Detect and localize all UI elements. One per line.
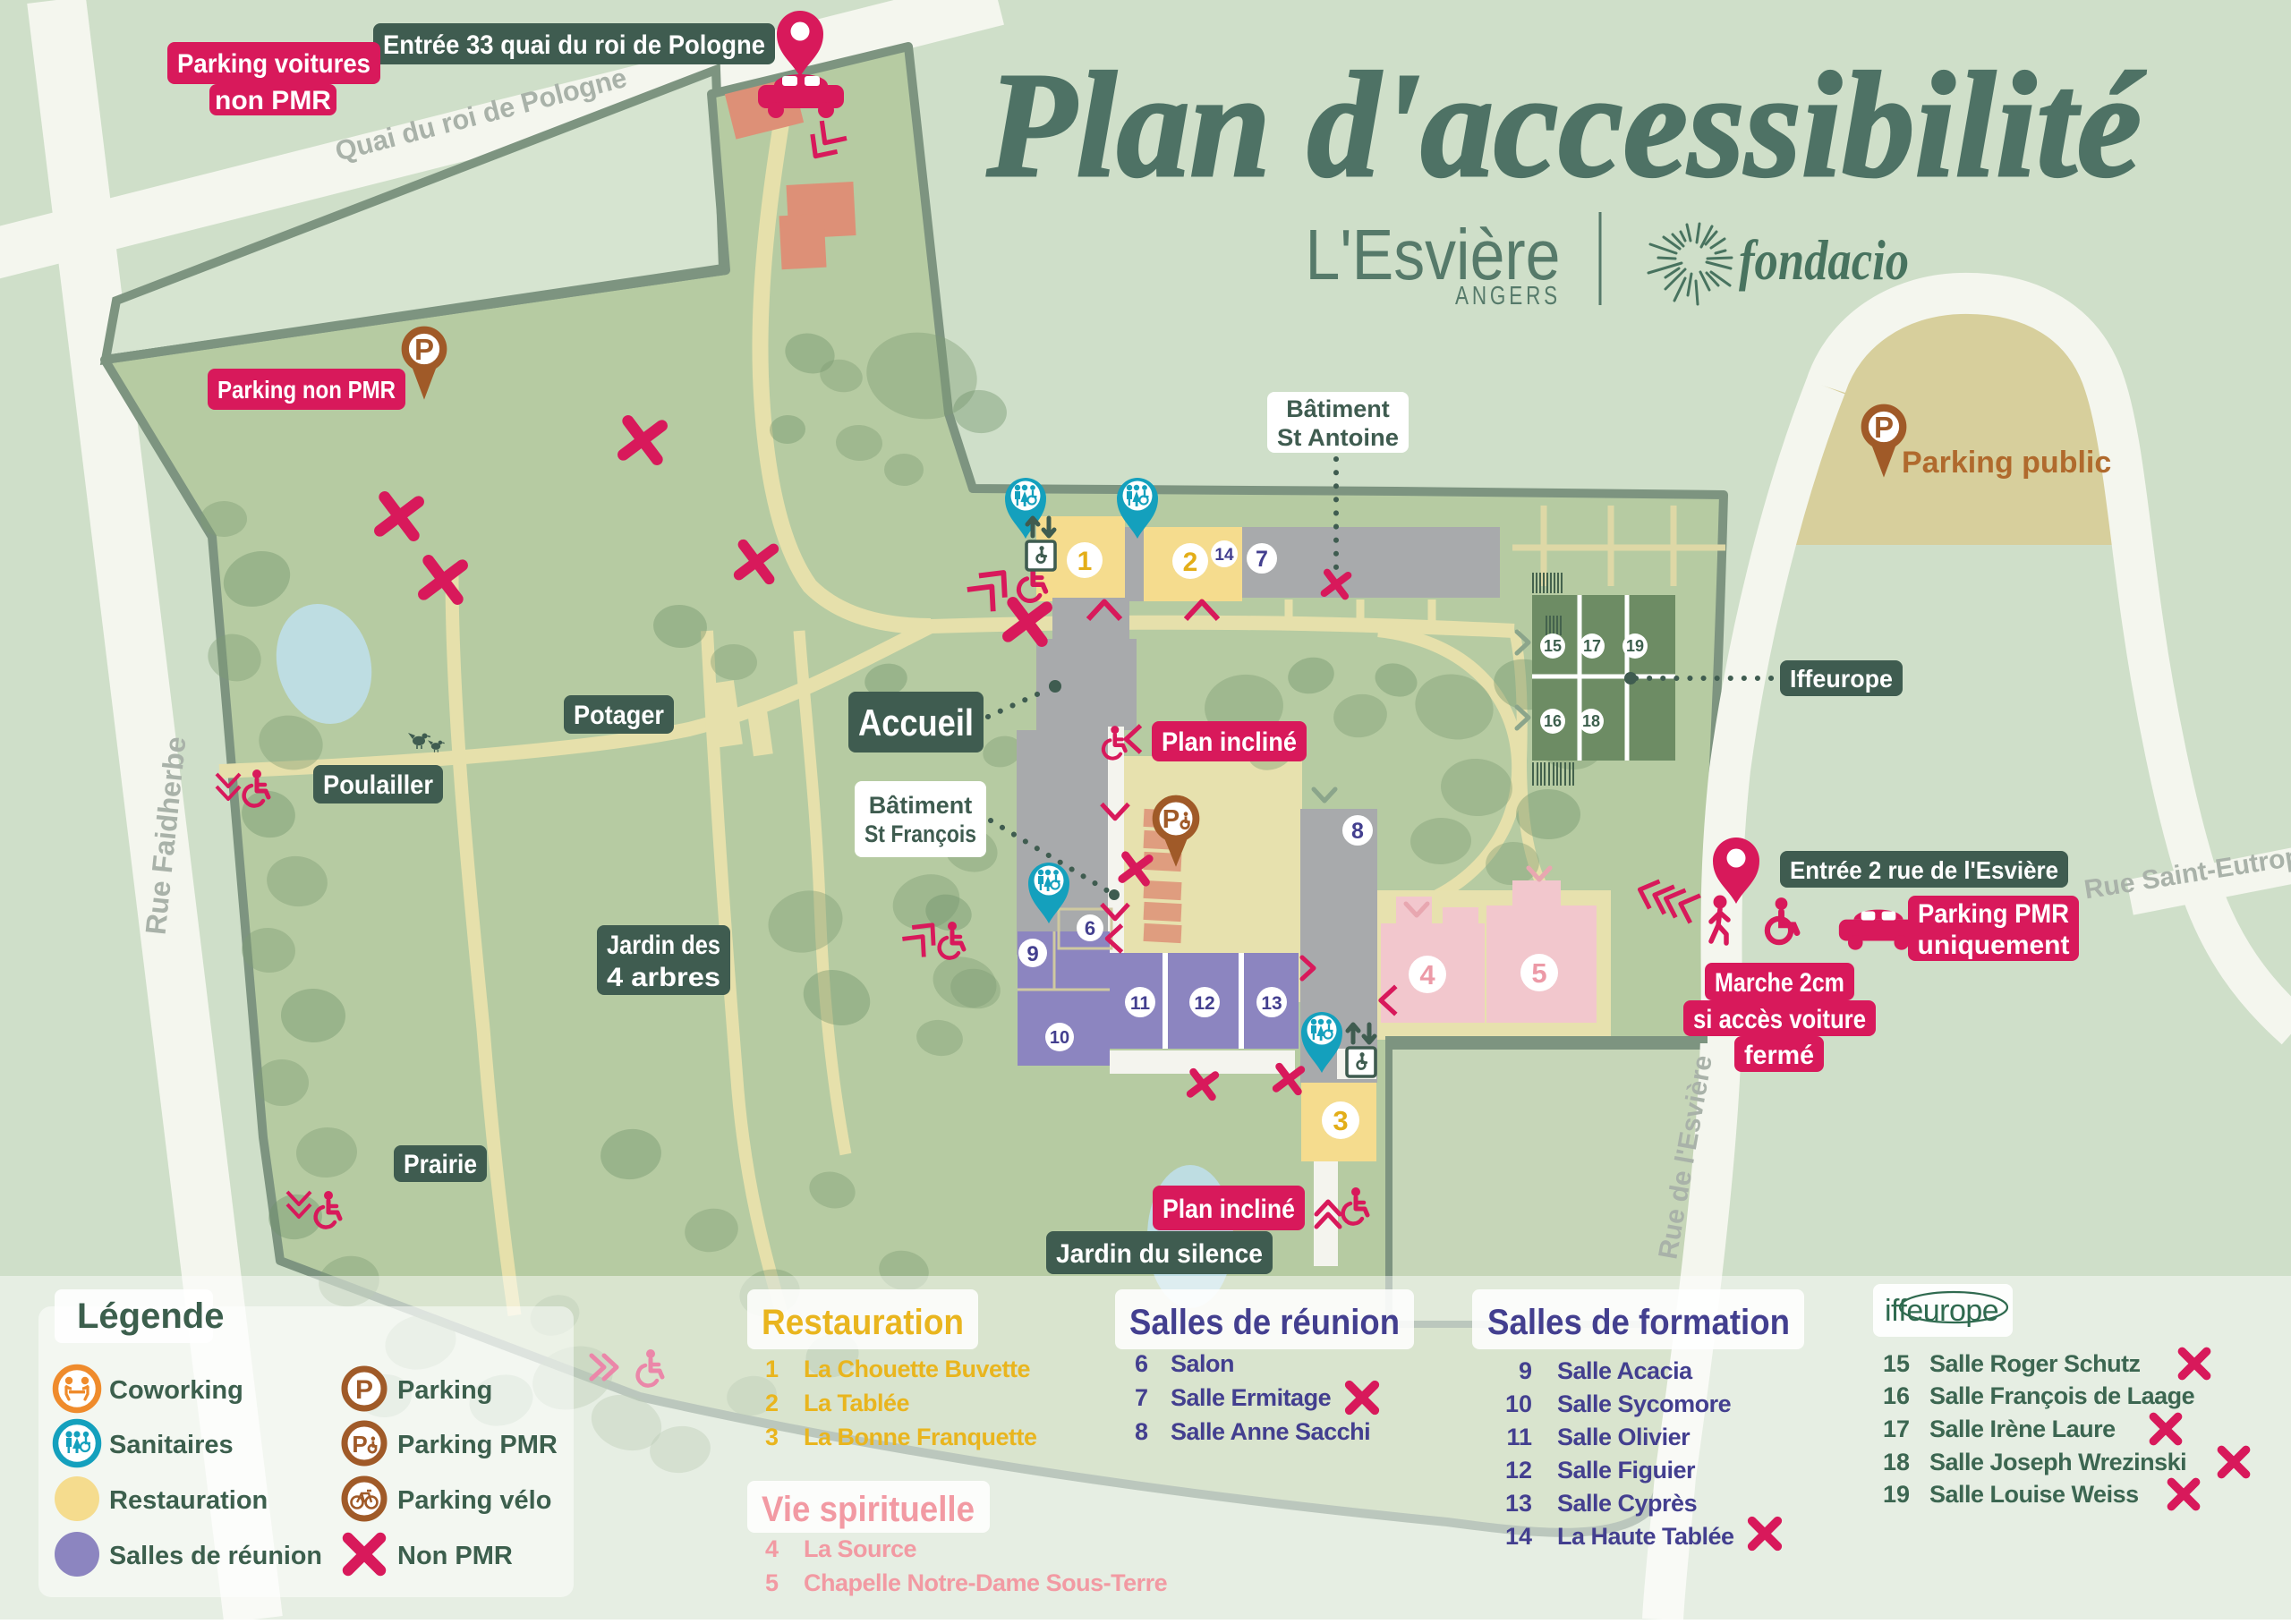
svg-text:Restauration: Restauration (109, 1486, 268, 1515)
svg-text:6: 6 (1085, 917, 1095, 940)
svg-text:La Bonne Franquette: La Bonne Franquette (804, 1424, 1037, 1450)
svg-text:Salles de formation: Salles de formation (1487, 1303, 1790, 1342)
svg-text:Potager: Potager (574, 701, 664, 730)
svg-text:La Source: La Source (804, 1535, 917, 1562)
svg-text:Accueil: Accueil (858, 701, 974, 744)
svg-text:Entrée 2 rue de l'Esvière: Entrée 2 rue de l'Esvière (1790, 856, 2058, 884)
svg-text:Salles de réunion: Salles de réunion (109, 1542, 322, 1570)
svg-text:18: 18 (1582, 712, 1600, 730)
svg-text:14: 14 (1214, 546, 1234, 565)
svg-text:Plan incliné: Plan incliné (1163, 1195, 1295, 1224)
svg-text:Prairie: Prairie (404, 1150, 477, 1179)
svg-text:Poulailler: Poulailler (323, 770, 433, 800)
svg-text:17: 17 (1883, 1416, 1910, 1442)
svg-text:15: 15 (1883, 1350, 1910, 1377)
svg-text:13: 13 (1261, 993, 1282, 1014)
svg-text:11: 11 (1130, 993, 1151, 1014)
svg-text:si accès voiture: si accès voiture (1693, 1005, 1866, 1034)
svg-text:Non PMR: Non PMR (397, 1542, 513, 1570)
svg-text:Bâtiment: Bâtiment (869, 792, 973, 819)
svg-text:St François: St François (864, 821, 976, 847)
svg-text:16: 16 (1883, 1382, 1910, 1409)
svg-text:6: 6 (1135, 1350, 1148, 1377)
svg-text:Parking non PMR: Parking non PMR (217, 376, 396, 404)
svg-text:Salle Joseph Wrezinski: Salle Joseph Wrezinski (1929, 1449, 2186, 1475)
svg-text:1: 1 (1077, 547, 1093, 576)
svg-text:uniquement: uniquement (1918, 931, 2070, 960)
svg-text:La Chouette Buvette: La Chouette Buvette (804, 1356, 1031, 1382)
svg-text:Salle Sycomore: Salle Sycomore (1557, 1390, 1732, 1417)
svg-text:11: 11 (1506, 1424, 1532, 1450)
svg-text:15: 15 (1544, 637, 1562, 655)
svg-text:Salle Olivier: Salle Olivier (1557, 1424, 1691, 1450)
svg-text:Salle Irène Laure: Salle Irène Laure (1929, 1416, 2116, 1442)
svg-text:Parking public: Parking public (1902, 446, 2111, 480)
svg-text:Salle François de Laage: Salle François de Laage (1929, 1382, 2195, 1409)
svg-text:Parking PMR: Parking PMR (397, 1431, 558, 1459)
svg-text:9: 9 (1519, 1357, 1532, 1384)
svg-text:4 arbres: 4 arbres (607, 963, 720, 992)
svg-text:17: 17 (1583, 637, 1601, 655)
svg-text:10: 10 (1505, 1390, 1532, 1417)
svg-text:P: P (355, 1375, 373, 1405)
svg-text:9: 9 (1026, 942, 1038, 966)
svg-text:Entrée 33 quai du roi de Polog: Entrée 33 quai du roi de Pologne (383, 30, 765, 60)
svg-text:Jardin des: Jardin des (607, 931, 720, 960)
svg-text:Salle Acacia: Salle Acacia (1557, 1357, 1693, 1384)
svg-text:Salon: Salon (1171, 1350, 1234, 1377)
svg-text:ANGERS: ANGERS (1455, 282, 1561, 310)
svg-text:2: 2 (765, 1390, 779, 1416)
svg-text:Salle Louise Weiss: Salle Louise Weiss (1929, 1481, 2139, 1508)
svg-text:Coworking: Coworking (109, 1376, 243, 1405)
svg-text:18: 18 (1883, 1449, 1910, 1475)
svg-text:14: 14 (1505, 1523, 1532, 1550)
svg-text:P: P (352, 1431, 367, 1458)
svg-text:Vie spirituelle: Vie spirituelle (762, 1490, 975, 1529)
svg-text:2: 2 (1183, 548, 1198, 577)
svg-text:La Haute Tablée: La Haute Tablée (1557, 1523, 1734, 1550)
svg-text:7: 7 (1135, 1384, 1148, 1411)
svg-text:12: 12 (1194, 993, 1214, 1014)
svg-text:19: 19 (1626, 637, 1644, 655)
svg-text:Parking PMR: Parking PMR (1918, 899, 2069, 929)
svg-text:Salle Anne Sacchi: Salle Anne Sacchi (1171, 1418, 1370, 1445)
svg-text:7: 7 (1256, 547, 1268, 572)
svg-text:Chapelle Notre-Dame Sous-Terre: Chapelle Notre-Dame Sous-Terre (804, 1569, 1168, 1596)
svg-text:1: 1 (765, 1356, 779, 1382)
svg-text:8: 8 (1135, 1418, 1148, 1445)
svg-text:La Tablée: La Tablée (804, 1390, 910, 1416)
svg-text:Parking voitures: Parking voitures (177, 49, 370, 79)
svg-text:8: 8 (1351, 819, 1364, 844)
svg-text:Marche 2cm: Marche 2cm (1715, 968, 1844, 998)
svg-text:3: 3 (1333, 1105, 1348, 1136)
svg-text:Parking: Parking (397, 1376, 492, 1405)
svg-text:4: 4 (765, 1535, 779, 1562)
svg-text:fondacio: fondacio (1739, 228, 1909, 292)
svg-text:3: 3 (765, 1424, 779, 1450)
svg-text:Salle Cyprès: Salle Cyprès (1557, 1490, 1697, 1517)
svg-text:non PMR: non PMR (215, 86, 331, 115)
svg-text:5: 5 (765, 1569, 779, 1596)
svg-text:12: 12 (1505, 1457, 1532, 1484)
svg-text:Salle Ermitage: Salle Ermitage (1171, 1384, 1332, 1411)
svg-text:4: 4 (1419, 959, 1435, 991)
svg-text:St Antoine: St Antoine (1277, 424, 1399, 451)
svg-text:Sanitaires: Sanitaires (109, 1431, 234, 1459)
svg-text:Salle Figuier: Salle Figuier (1557, 1457, 1696, 1484)
svg-text:5: 5 (1531, 957, 1546, 989)
svg-text:Légende: Légende (77, 1297, 224, 1336)
svg-text:Salle Roger Schutz: Salle Roger Schutz (1929, 1350, 2141, 1377)
svg-text:Parking vélo: Parking vélo (397, 1486, 551, 1515)
svg-text:Salles de réunion: Salles de réunion (1129, 1303, 1400, 1342)
svg-text:10: 10 (1050, 1028, 1069, 1048)
svg-text:Jardin du silence: Jardin du silence (1056, 1239, 1263, 1269)
svg-text:Restauration: Restauration (762, 1303, 964, 1342)
svg-text:19: 19 (1883, 1481, 1910, 1508)
svg-text:13: 13 (1505, 1490, 1532, 1517)
svg-text:Plan incliné: Plan incliné (1162, 727, 1297, 757)
svg-text:Bâtiment: Bâtiment (1286, 395, 1390, 422)
svg-text:Iffeurope: Iffeurope (1790, 665, 1893, 693)
svg-text:16: 16 (1544, 712, 1562, 730)
svg-text:fermé: fermé (1744, 1041, 1814, 1070)
svg-text:Plan d'accessibilité: Plan d'accessibilité (986, 42, 2146, 208)
